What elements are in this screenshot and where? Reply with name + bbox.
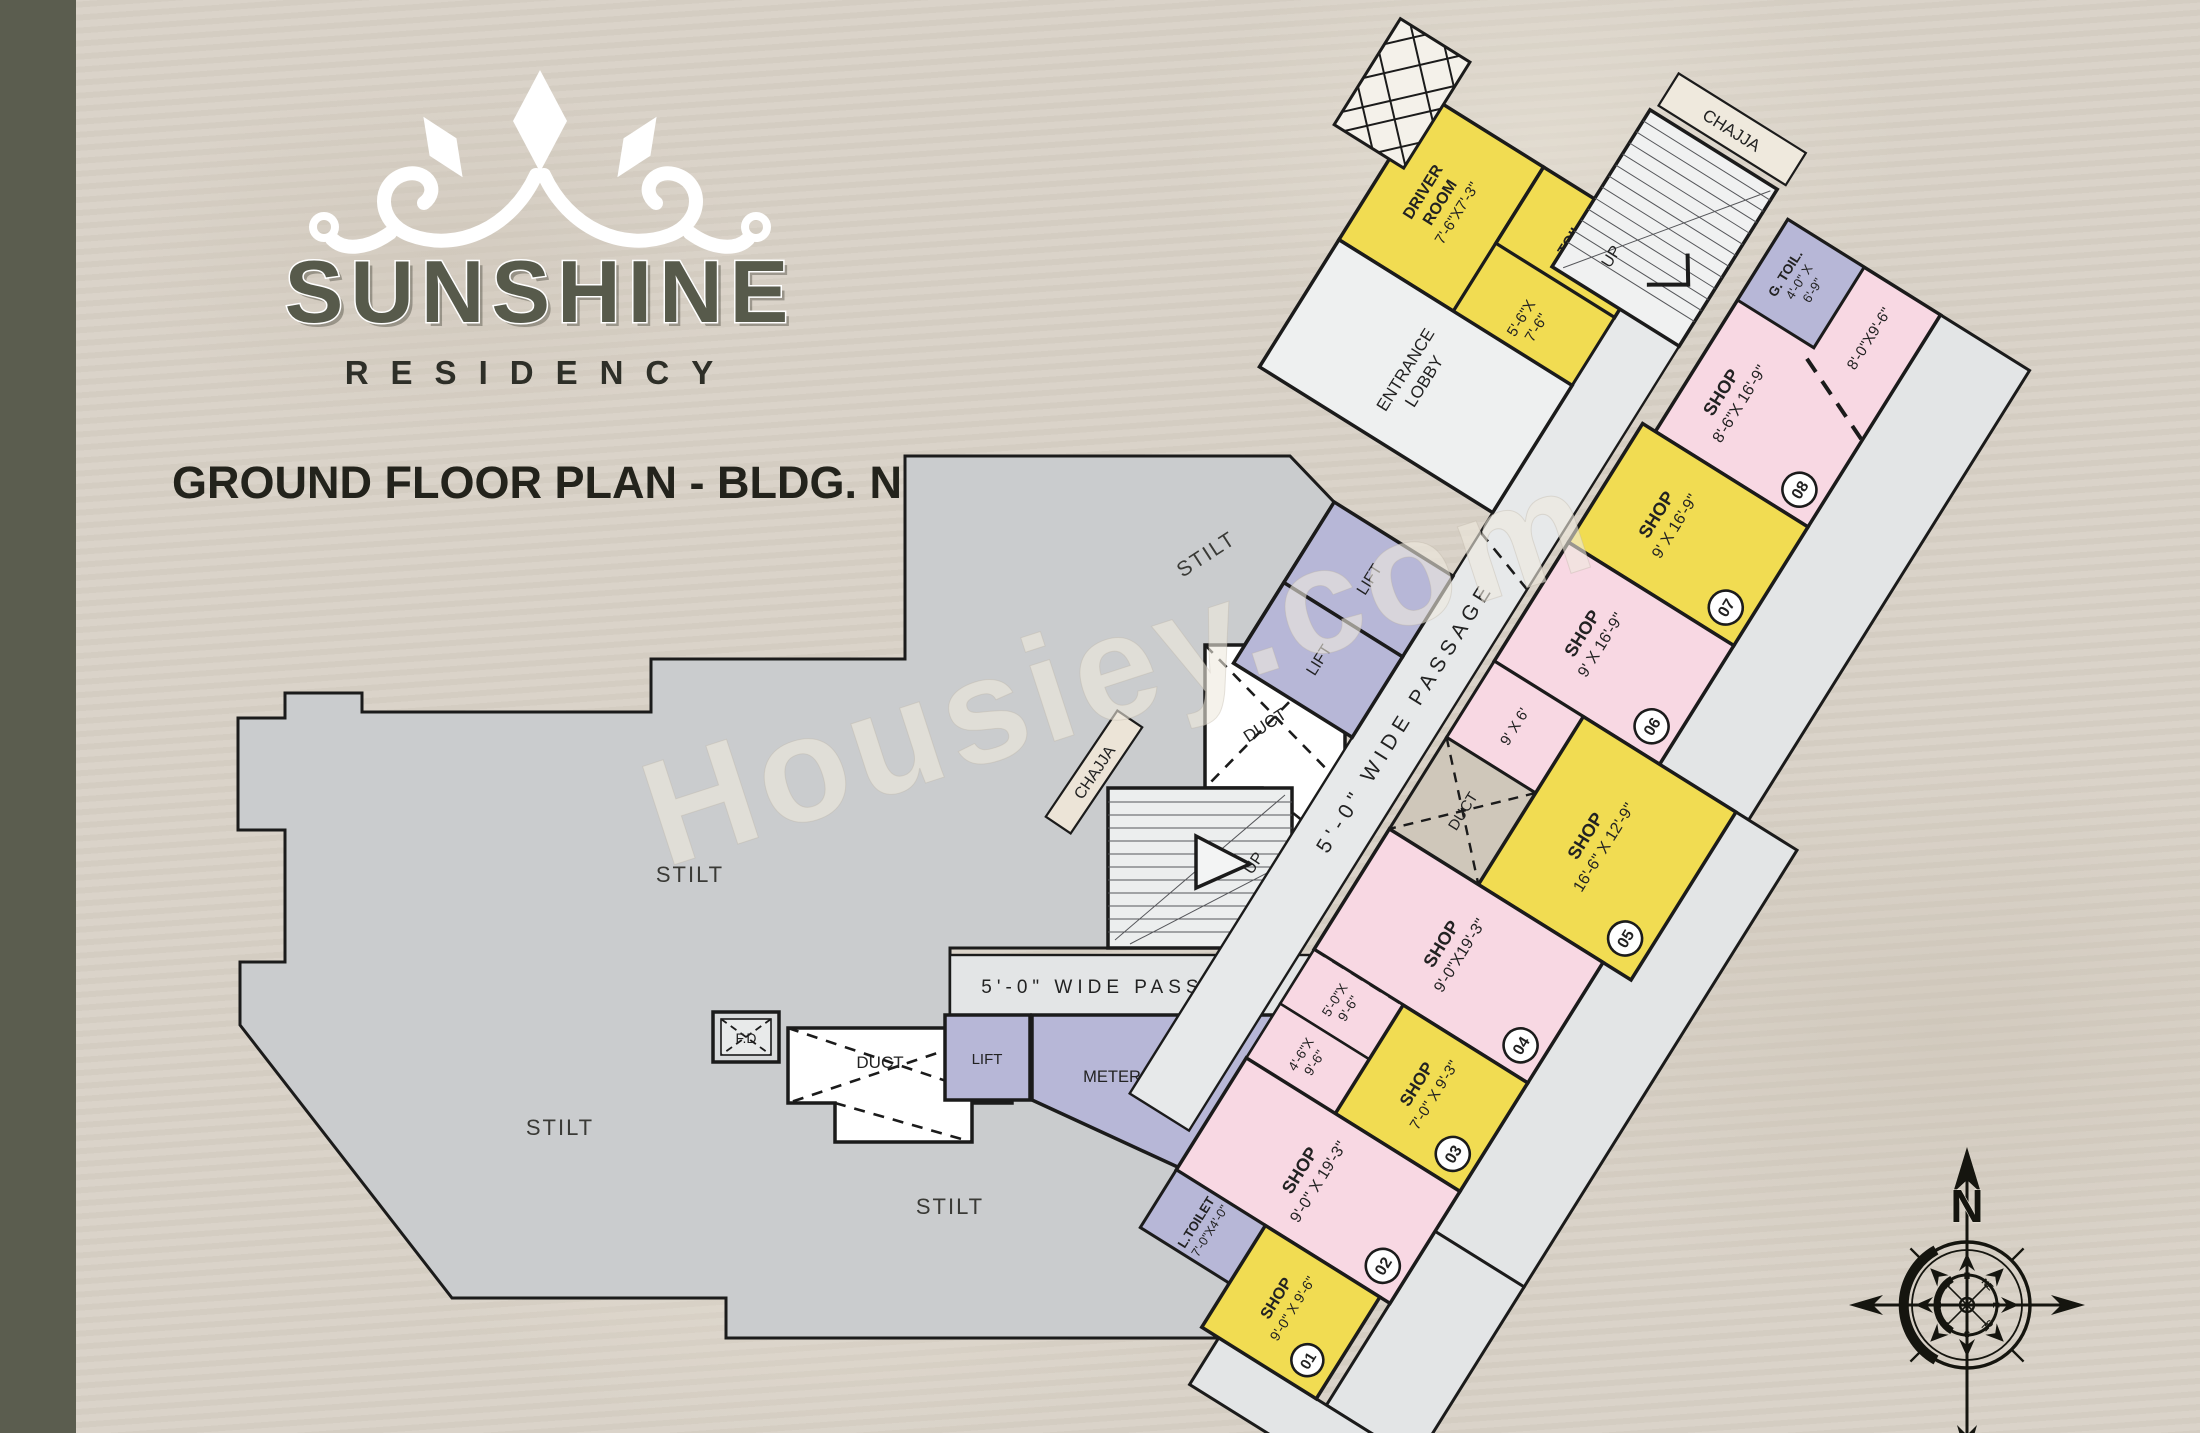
- crown-icon: [313, 70, 767, 247]
- brand-logo: SUNSHINE SUNSHINE RESIDENCY GROUND FLOOR…: [172, 70, 975, 508]
- brand-name: SUNSHINE: [285, 242, 796, 341]
- stilt-label-3: STILT: [916, 1194, 984, 1219]
- duct-lower-label: DUCT: [856, 1053, 903, 1072]
- fd-box: F.D: [713, 1012, 779, 1062]
- page-title: GROUND FLOOR PLAN - BLDG. NO.1: [172, 457, 975, 508]
- stilt-label-2: STILT: [526, 1115, 594, 1140]
- floor-plan-page: SUNSHINE SUNSHINE RESIDENCY GROUND FLOOR…: [0, 0, 2200, 1433]
- lift-bottom: LIFT: [945, 1015, 1030, 1100]
- brand-sub: RESIDENCY: [345, 354, 736, 391]
- lift-bottom-label: LIFT: [972, 1051, 1003, 1068]
- left-accent-strip: [0, 0, 76, 1433]
- fd-label: F.D: [736, 1030, 757, 1046]
- compass-north-label: N: [1950, 1180, 1983, 1232]
- compass-rose: N N NE E SE S SW W NW: [1849, 1147, 2085, 1433]
